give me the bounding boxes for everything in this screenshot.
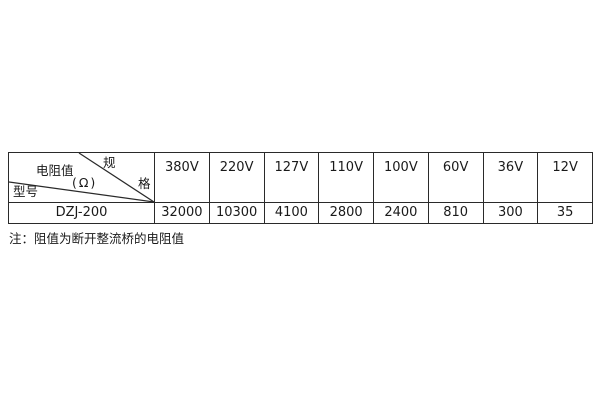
resistance-label: 电阻值: [36, 165, 74, 178]
column-header-36v: 36V: [483, 153, 538, 202]
resistance-value-60v: 810: [428, 203, 483, 223]
model-label: 型号: [13, 186, 38, 199]
resistance-value-220v: 10300: [209, 203, 264, 223]
resistance-value-127v: 4100: [264, 203, 319, 223]
column-header-110v: 110V: [318, 153, 373, 202]
spec-label-bottom: 格: [138, 178, 151, 191]
model-cell: DZJ-200: [9, 203, 154, 223]
column-header-127v: 127V: [264, 153, 319, 202]
table-header-row: 规 格 电阻值 (Ω) 型号 380V 220V 127V 110V 100V …: [9, 153, 592, 202]
resistance-value-12v: 35: [537, 203, 592, 223]
resistance-unit-label: (Ω): [72, 177, 97, 190]
resistance-value-36v: 300: [483, 203, 538, 223]
resistance-spec-table: 规 格 电阻值 (Ω) 型号 380V 220V 127V 110V 100V …: [8, 152, 593, 224]
resistance-value-100v: 2400: [373, 203, 428, 223]
spec-label-top: 规: [103, 157, 116, 170]
resistance-value-110v: 2800: [318, 203, 373, 223]
column-header-220v: 220V: [209, 153, 264, 202]
column-header-60v: 60V: [428, 153, 483, 202]
column-header-100v: 100V: [373, 153, 428, 202]
diagonal-header-cell: 规 格 电阻值 (Ω) 型号: [9, 153, 154, 202]
page: 规 格 电阻值 (Ω) 型号 380V 220V 127V 110V 100V …: [0, 0, 600, 400]
column-header-12v: 12V: [537, 153, 592, 202]
resistance-value-380v: 32000: [154, 203, 209, 223]
column-header-380v: 380V: [154, 153, 209, 202]
table-data-row: DZJ-200 32000 10300 4100 2800 2400 810 3…: [9, 202, 592, 223]
footnote: 注：阻值为断开整流桥的电阻值: [9, 228, 184, 247]
